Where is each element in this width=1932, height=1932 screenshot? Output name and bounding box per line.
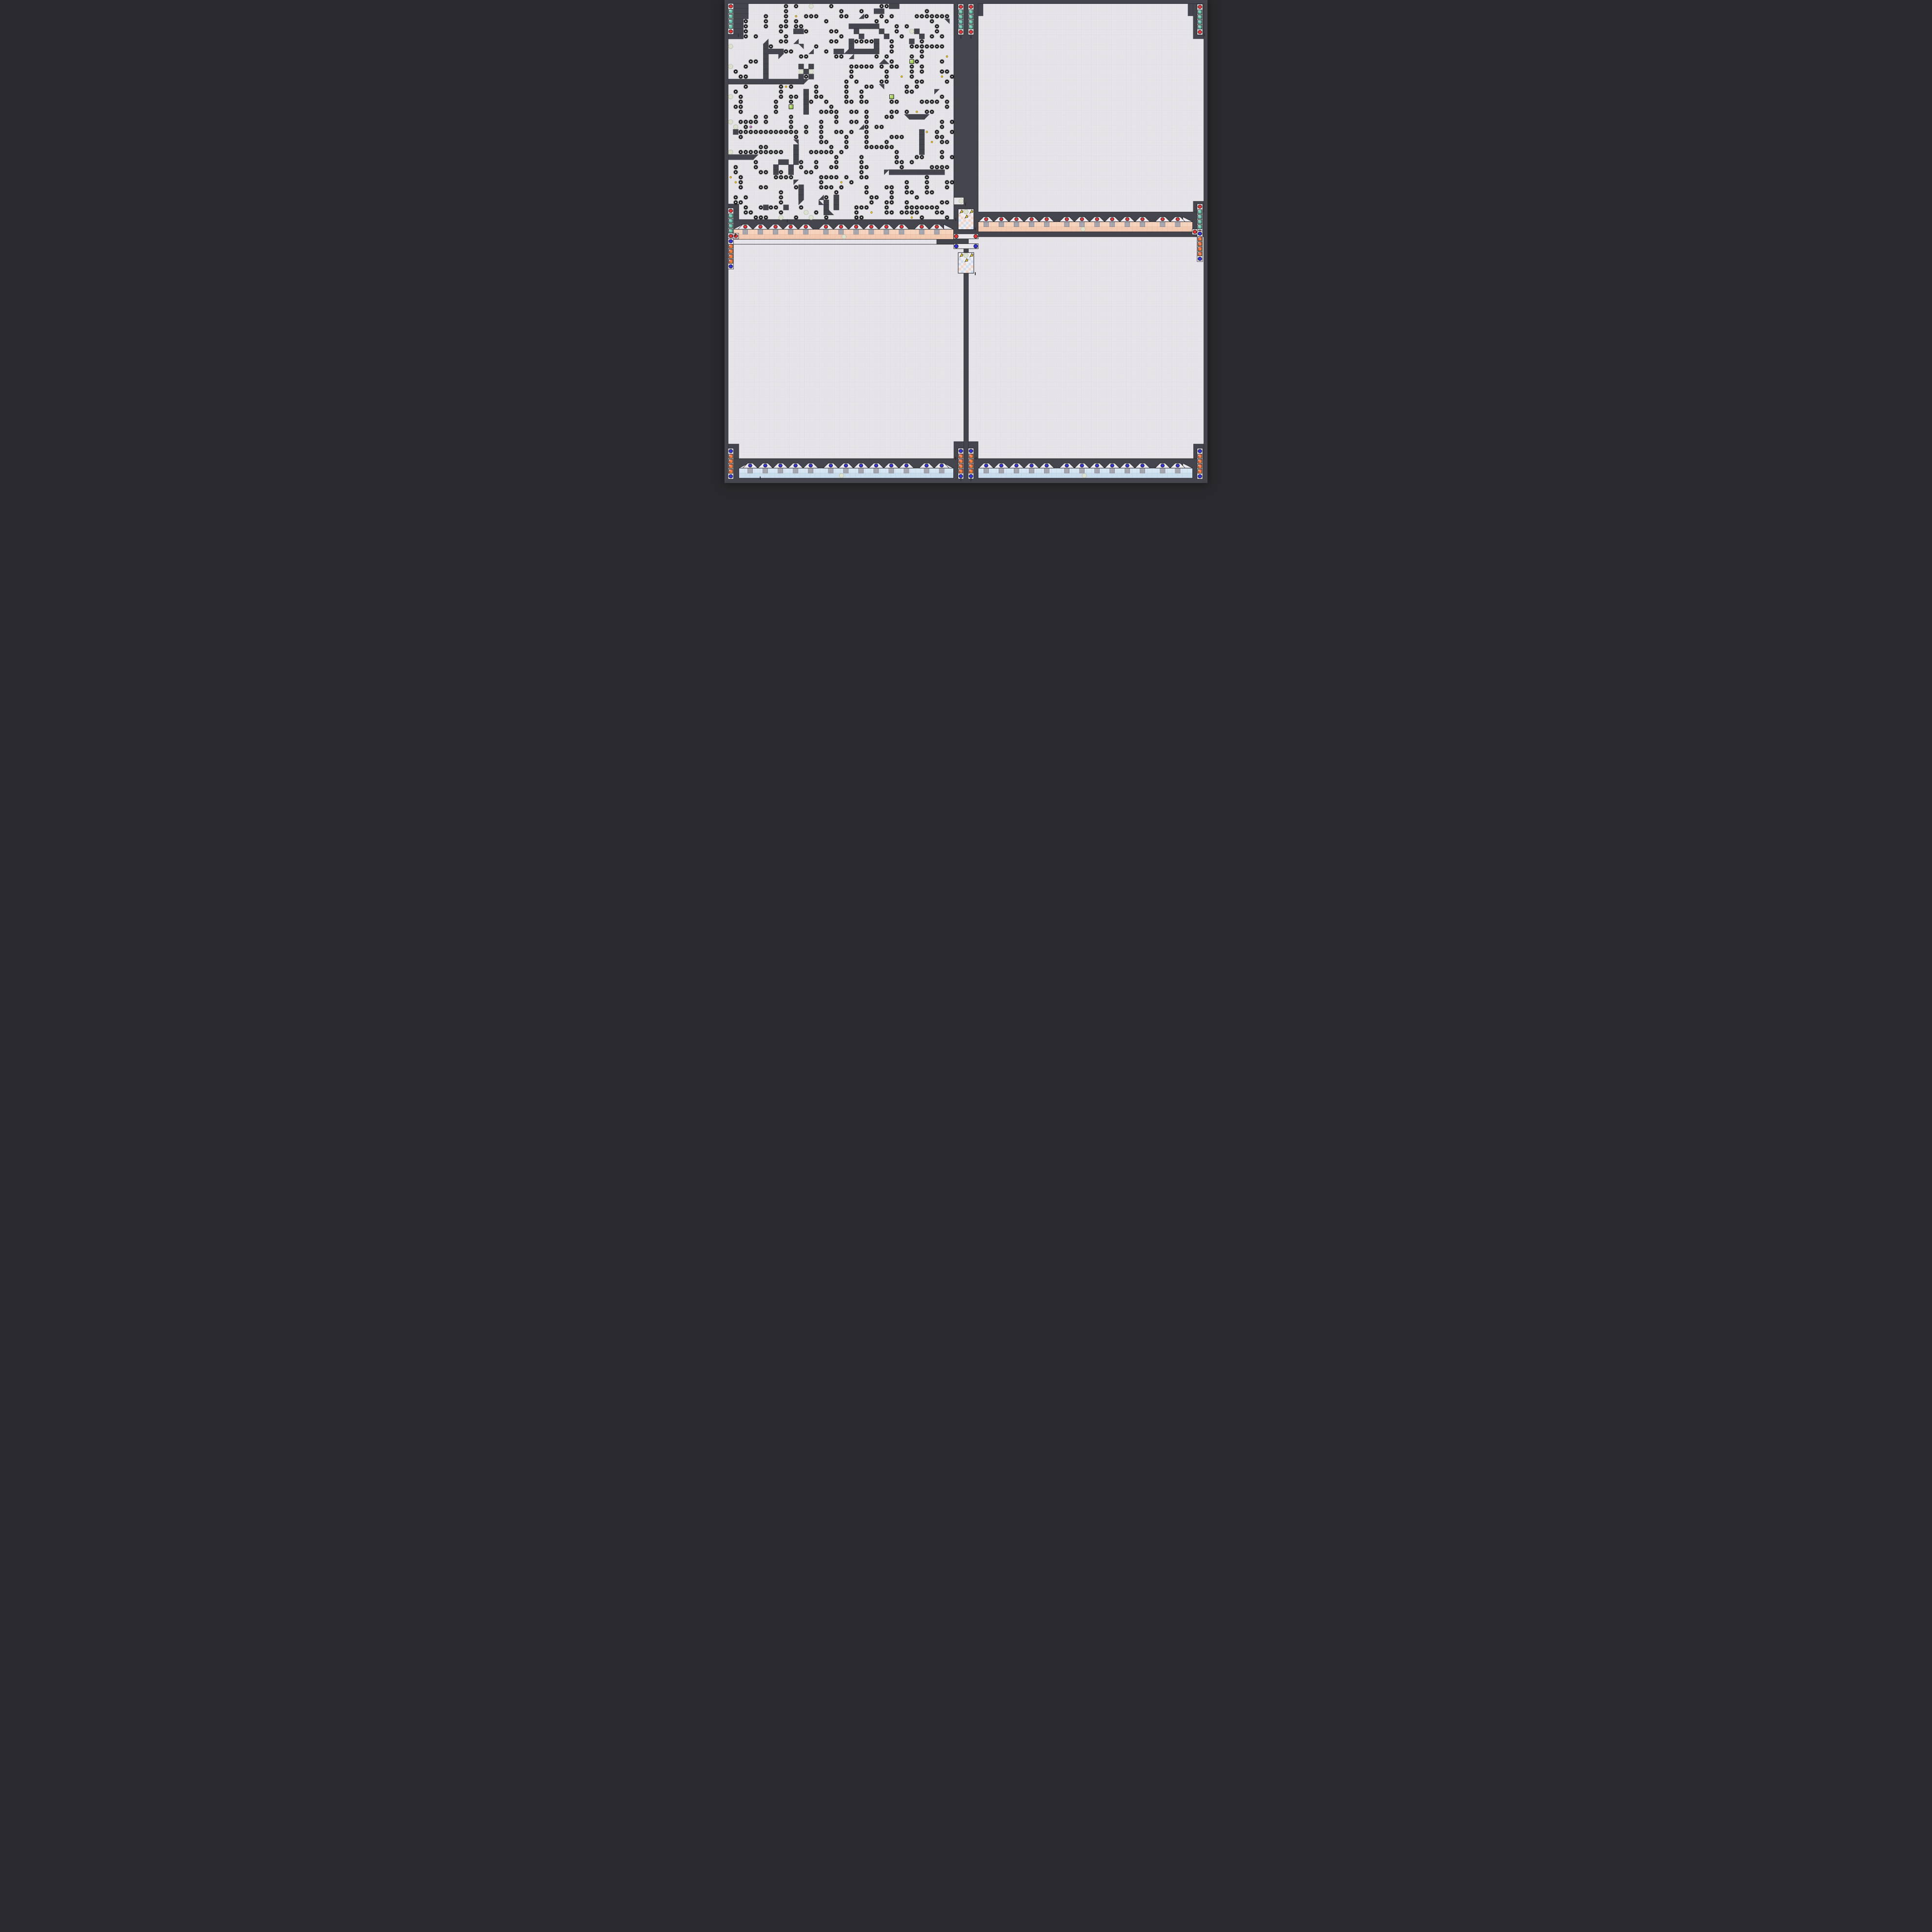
red-spawn-dot <box>744 225 747 228</box>
vent-grate <box>904 468 909 473</box>
vent-grate <box>1080 468 1085 473</box>
pcirc-icon <box>1081 227 1085 231</box>
vent-grate <box>763 468 768 473</box>
blue-bar-dot <box>954 244 958 248</box>
vent-grate <box>1095 468 1100 473</box>
vent-grate <box>1160 222 1165 227</box>
pcirc-icon <box>728 64 733 69</box>
coin-icon <box>916 111 918 113</box>
red-spawn-dot <box>1110 218 1114 221</box>
blue-spawn-dot <box>829 464 833 467</box>
red-indicator-dot <box>729 209 733 213</box>
blue-indicator-dot <box>729 264 733 268</box>
blue-spawn-dot <box>748 464 752 467</box>
red-spawn-dot <box>824 225 828 228</box>
blue-spawn-dot <box>940 464 944 467</box>
vent-grate <box>773 229 778 234</box>
vent-grate <box>934 229 939 234</box>
blue-spawn-dot <box>874 464 878 467</box>
pcirc-icon <box>809 69 813 74</box>
vent-grate <box>869 229 874 234</box>
pur-icon <box>749 126 752 128</box>
vent-grate <box>1065 468 1069 473</box>
blue-spawn-dot <box>889 464 893 467</box>
coin-icon <box>941 76 943 78</box>
blue-indicator-dot <box>729 240 733 243</box>
blue-indicator-dot <box>959 474 963 478</box>
pcirc-icon <box>728 44 733 49</box>
door-tick <box>965 202 966 206</box>
pcirc-icon <box>809 215 813 220</box>
vent-grate <box>874 468 879 473</box>
vent-grate <box>1065 222 1069 227</box>
red-indicator-dot <box>969 30 973 34</box>
gitem-icon <box>789 105 793 109</box>
vent-grate <box>899 229 904 234</box>
vent-grate <box>1044 468 1049 473</box>
vent-grate <box>889 468 894 473</box>
vent-grate <box>748 468 753 473</box>
door-tick <box>961 478 962 482</box>
red-spawn-dot <box>759 225 763 228</box>
vent-grate <box>984 468 988 473</box>
blue-indicator-dot <box>1198 475 1202 478</box>
blue-spawn-dot <box>1176 464 1180 467</box>
blue-spawn-dot <box>859 464 863 467</box>
coin-icon <box>911 217 913 219</box>
vent-grate <box>859 468 864 473</box>
red-indicator-dot <box>959 5 963 8</box>
blue-spawn-dot <box>1000 464 1004 467</box>
red-spawn-dot <box>869 225 873 228</box>
blue-spawn-dot <box>1141 464 1145 467</box>
blue-spawn-dot <box>925 464 928 467</box>
pcirc-icon <box>959 199 963 203</box>
door-tick <box>955 218 956 221</box>
door-tick <box>975 272 976 276</box>
red-spawn-dot <box>1141 218 1145 221</box>
vent-grate <box>1140 222 1145 227</box>
vent-grate <box>1110 468 1115 473</box>
blue-bar-dot <box>974 244 978 248</box>
blue-indicator-dot <box>1198 257 1202 261</box>
blue-indicator-dot <box>729 449 733 453</box>
blue-spawn-dot <box>1030 464 1034 467</box>
vent-grate <box>999 468 1004 473</box>
pcirc-icon <box>964 253 968 258</box>
blue-spawn-dot <box>1065 464 1069 467</box>
red-indicator-dot <box>1198 5 1202 9</box>
blue-spawn-dot <box>1161 464 1165 467</box>
vent-grate <box>793 468 798 473</box>
red-spawn-dot <box>1080 218 1084 221</box>
red-spawn-dot <box>920 225 924 228</box>
coin-icon <box>730 176 732 178</box>
vent-grate <box>1044 222 1049 227</box>
red-spawn-dot <box>774 225 778 228</box>
red-indicator-dot <box>729 30 733 33</box>
vent-grate <box>1080 222 1085 227</box>
coin-icon <box>931 141 933 143</box>
red-bar-dot <box>974 234 978 238</box>
vent-grate <box>1110 222 1115 227</box>
red-spawn-dot <box>839 225 843 228</box>
pcirc-icon <box>842 235 846 239</box>
red-spawn-dot <box>1030 218 1034 221</box>
gitem-icon <box>889 95 894 99</box>
coin-icon <box>901 76 903 78</box>
vent-grate <box>844 468 848 473</box>
pcirc-icon <box>1082 473 1087 478</box>
door-tick <box>955 457 956 460</box>
door-tick <box>970 478 971 482</box>
coin-icon <box>785 86 787 88</box>
blue-spawn-dot <box>794 464 798 467</box>
door-tick <box>975 227 976 231</box>
door-tick <box>976 457 977 460</box>
pcirc-icon <box>839 473 844 478</box>
door-tick <box>1204 33 1205 37</box>
vent-grate <box>788 229 793 234</box>
red-spawn-dot <box>1000 218 1004 221</box>
blue-indicator-dot <box>1198 232 1202 235</box>
vent-grate <box>854 229 859 234</box>
door-tick <box>760 477 761 480</box>
red-spawn-dot <box>1176 218 1180 221</box>
blue-spawn-dot <box>779 464 783 467</box>
red-spawn-dot <box>985 218 988 221</box>
blue-spawn-dot <box>1045 464 1049 467</box>
vent-grate <box>808 468 813 473</box>
blue-spawn-dot <box>764 464 767 467</box>
door-tick <box>738 34 739 37</box>
red-spawn-dot <box>789 225 793 228</box>
pcirc-icon <box>728 120 733 124</box>
blue-spawn-dot <box>1080 464 1084 467</box>
vent-grate <box>1160 468 1165 473</box>
door-tick <box>735 233 736 237</box>
vent-grate <box>758 229 763 234</box>
gitem-icon <box>910 60 914 64</box>
vent-grate <box>984 222 988 227</box>
pcirc-icon <box>799 69 803 74</box>
wall-notch <box>1188 4 1193 16</box>
vent-grate <box>743 229 748 234</box>
red-spawn-dot <box>1015 218 1019 221</box>
vent-grate <box>884 229 889 234</box>
vent-grate <box>1140 468 1145 473</box>
wall-notch <box>978 4 983 16</box>
vent-grate <box>824 229 828 234</box>
red-indicator-dot <box>1198 30 1202 34</box>
vent-grate <box>1095 222 1100 227</box>
red-spawn-dot <box>935 225 939 228</box>
coin-icon <box>841 181 843 183</box>
coin-icon <box>795 15 797 17</box>
red-indicator-dot <box>969 5 973 8</box>
blue-spawn-dot <box>985 464 988 467</box>
pcirc-icon <box>909 29 914 34</box>
door-tick <box>961 36 962 39</box>
red-spawn-dot <box>1095 218 1099 221</box>
vent-grate <box>924 468 929 473</box>
red-spawn-dot <box>1126 218 1129 221</box>
game-map-viewport[interactable] <box>724 0 1207 483</box>
door-tick <box>970 36 971 39</box>
red-spawn-dot <box>885 225 888 228</box>
red-indicator-dot <box>1193 230 1197 234</box>
blue-indicator-dot <box>959 449 963 453</box>
red-spawn-dot <box>1045 218 1049 221</box>
blue-spawn-dot <box>1015 464 1019 467</box>
blue-spawn-dot <box>1110 464 1114 467</box>
blue-indicator-dot <box>969 449 973 453</box>
vent-grate <box>1014 468 1019 473</box>
blue-spawn-dot <box>1126 464 1129 467</box>
blue-indicator-dot <box>969 474 973 478</box>
vent-grate <box>1029 222 1034 227</box>
red-spawn-dot <box>854 225 858 228</box>
pcirc-icon <box>964 209 968 214</box>
vent-grate <box>1125 468 1130 473</box>
vent-grate <box>839 229 844 234</box>
vent-grate <box>828 468 833 473</box>
red-spawn-dot <box>804 225 808 228</box>
red-spawn-dot <box>1065 218 1069 221</box>
vent-grate <box>919 229 924 234</box>
game-map-svg[interactable] <box>724 0 1207 483</box>
blue-spawn-dot <box>905 464 908 467</box>
vent-grate <box>804 229 808 234</box>
red-indicator-dot <box>729 234 733 238</box>
red-indicator-dot <box>729 4 733 8</box>
red-spawn-dot <box>1161 218 1165 221</box>
red-bar-dot <box>954 234 958 238</box>
blue-indicator-dot <box>729 475 733 478</box>
red-indicator-dot <box>734 234 738 238</box>
red-indicator-dot <box>959 30 963 34</box>
blue-indicator-dot <box>1198 449 1202 453</box>
vent-grate <box>1029 468 1034 473</box>
pcirc-icon <box>728 95 733 99</box>
vent-grate <box>1125 222 1130 227</box>
vent-grate <box>1175 222 1180 227</box>
vent-grate <box>999 222 1004 227</box>
pcirc-icon <box>779 215 783 220</box>
door-tick <box>787 219 788 222</box>
blue-spawn-dot <box>809 464 813 467</box>
vent-grate <box>1014 222 1019 227</box>
coin-icon <box>735 181 737 183</box>
pcirc-icon <box>733 125 738 129</box>
vent-grate <box>1175 468 1180 473</box>
coin-icon <box>946 56 948 58</box>
blue-spawn-dot <box>1095 464 1099 467</box>
coin-icon <box>926 131 928 133</box>
red-indicator-dot <box>1198 205 1202 208</box>
pcirc-icon <box>728 150 733 154</box>
coin-icon <box>871 212 873 214</box>
pcirc-icon <box>809 4 813 8</box>
red-spawn-dot <box>900 225 904 228</box>
vent-grate <box>778 468 783 473</box>
pcirc-icon <box>804 210 808 215</box>
vent-grate <box>939 468 944 473</box>
blue-spawn-dot <box>844 464 848 467</box>
